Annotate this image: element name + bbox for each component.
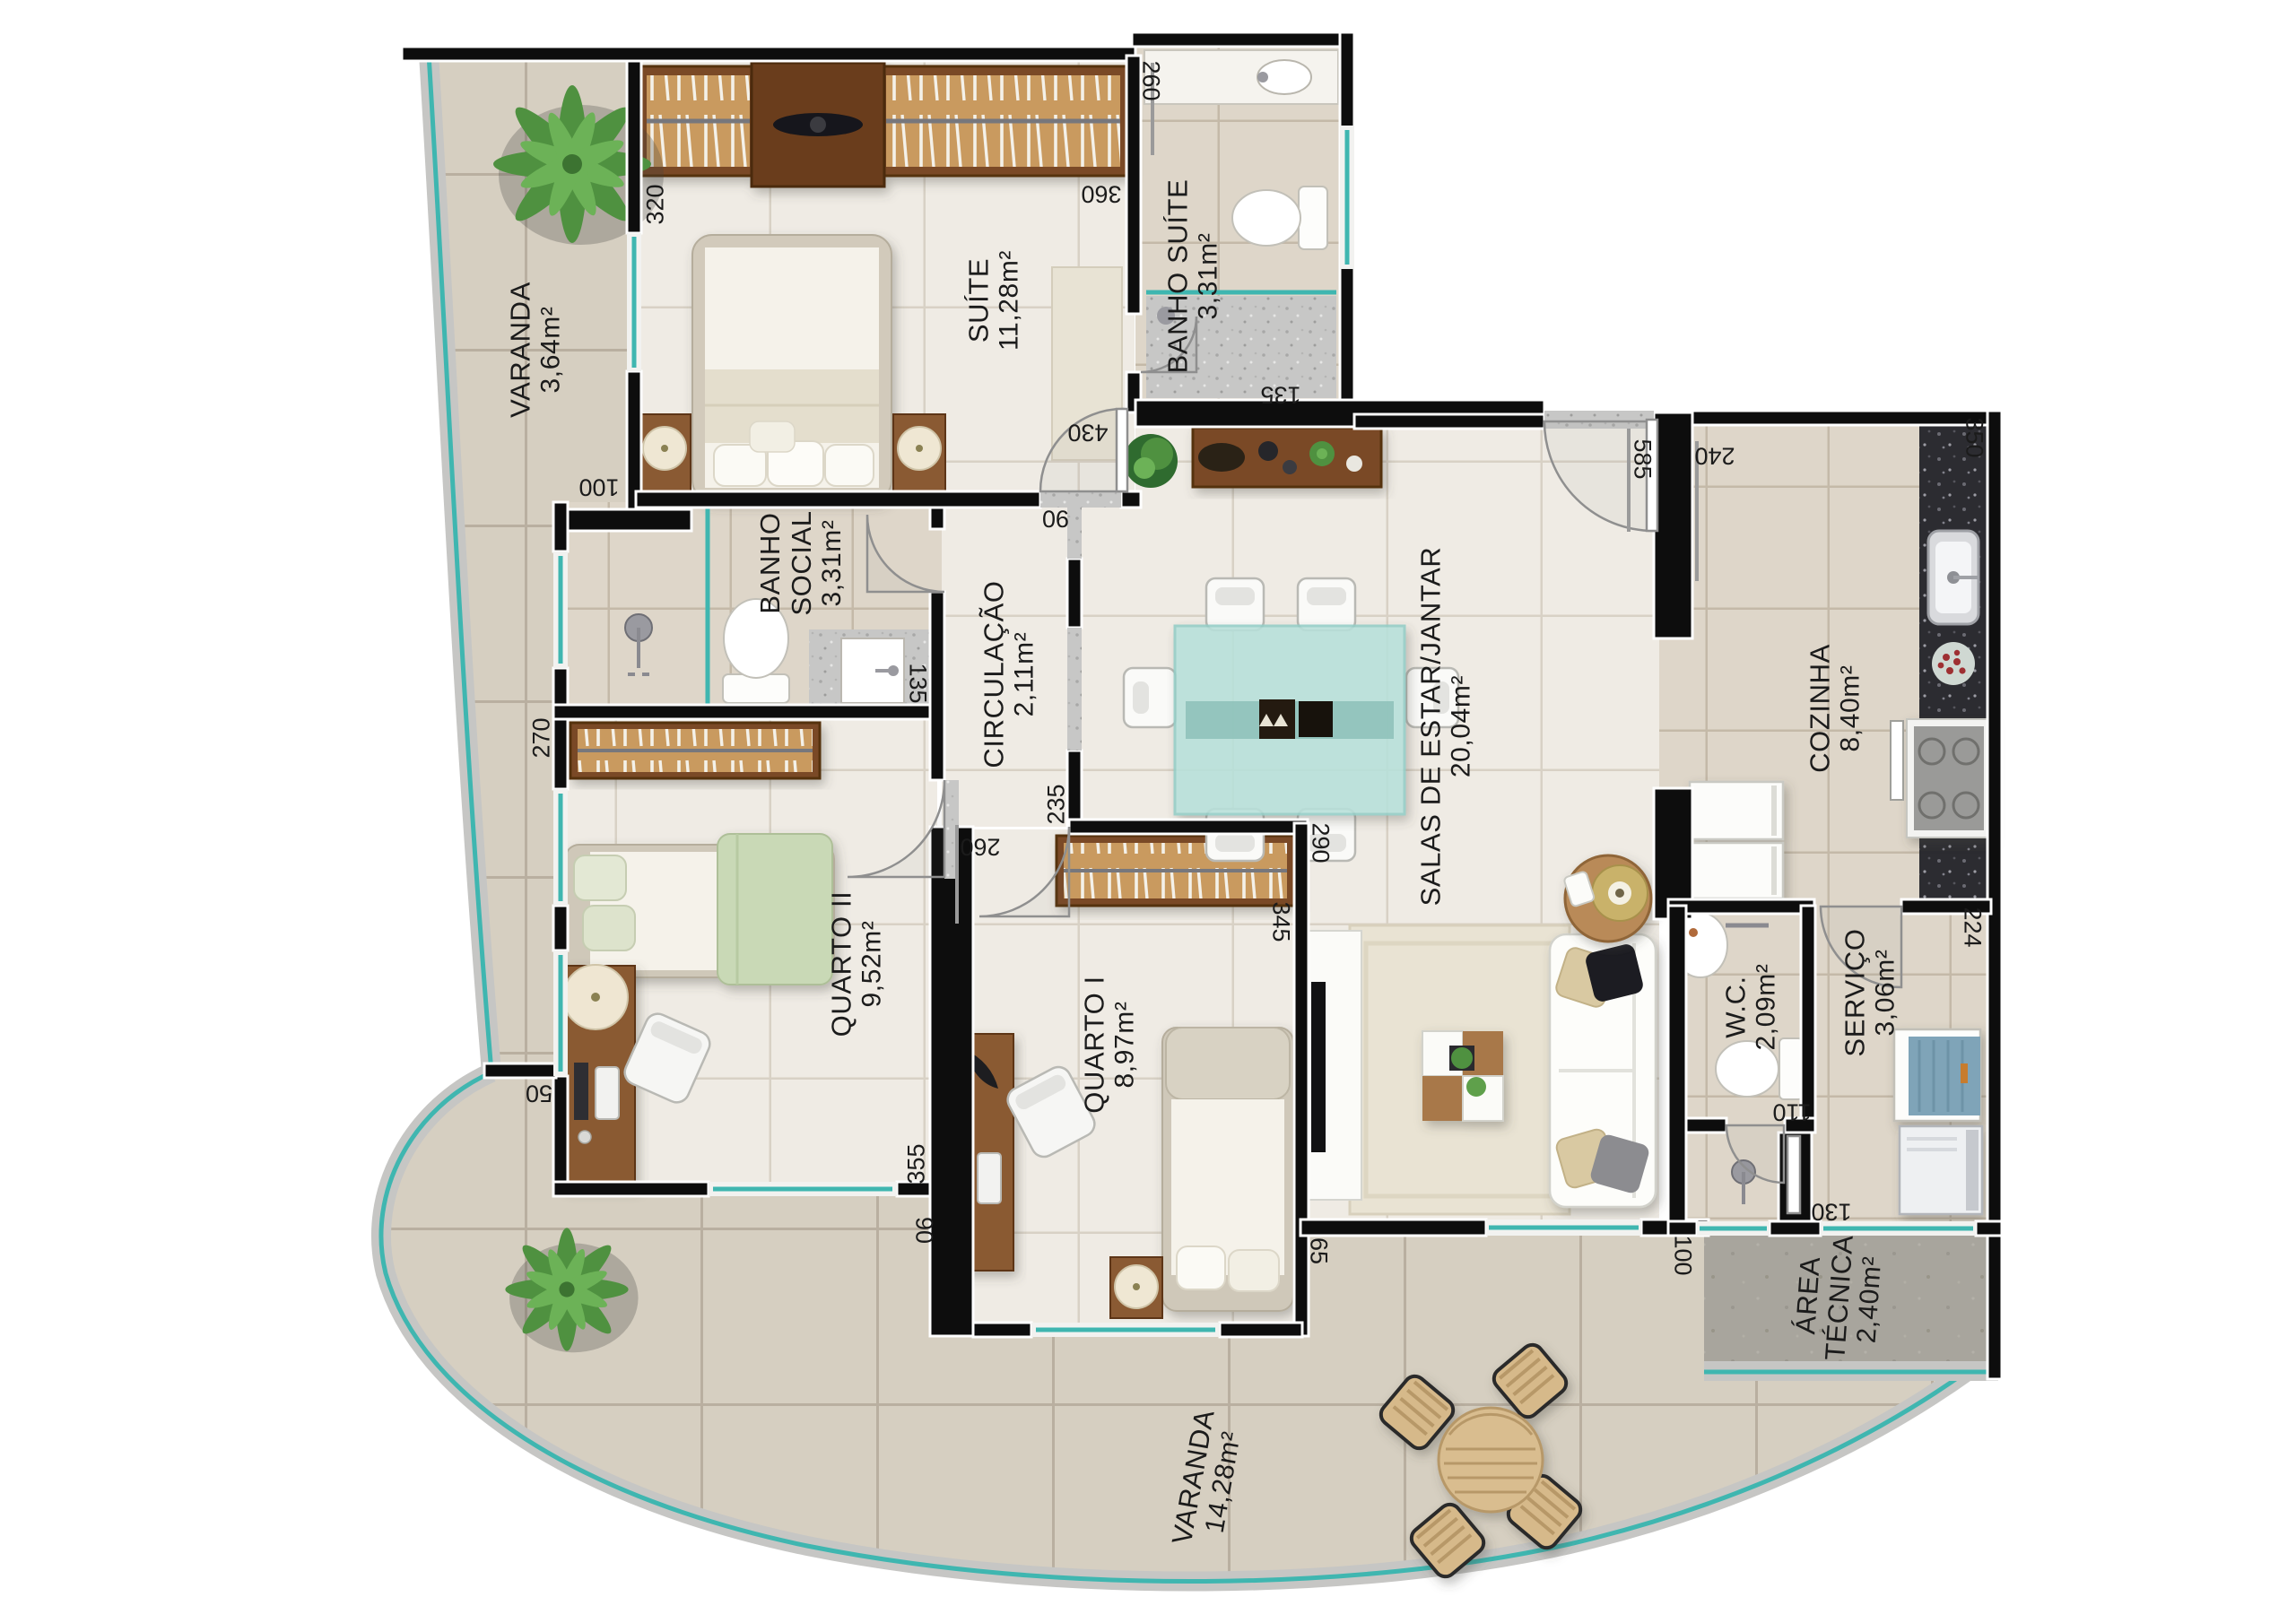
room-name: QUARTO II xyxy=(826,891,857,1037)
room-label-circulacao: CIRCULAÇÃO 2,11m² xyxy=(978,580,1040,768)
floor-plan-drawing xyxy=(0,0,2296,1623)
dimension-355: 355 xyxy=(903,1143,931,1184)
room-area: 8,97m² xyxy=(1110,1002,1141,1089)
servico-laundry-tank xyxy=(1894,1029,1980,1121)
dimension-100-wc: 100 xyxy=(1669,1235,1697,1275)
dimension-90-suite-door: 90 xyxy=(1042,505,1069,533)
quarto2-single-bed xyxy=(565,834,834,985)
dimension-110: 110 xyxy=(1772,1098,1811,1126)
room-label-salas: SALAS DE ESTAR/JANTAR 20,04m² xyxy=(1415,547,1477,907)
dimension-320: 320 xyxy=(642,184,670,224)
kitchen-fridge xyxy=(1690,782,1783,898)
dimension-130: 130 xyxy=(1811,1198,1851,1226)
dimension-345: 345 xyxy=(1267,901,1295,942)
quarto2-wardrobe xyxy=(570,723,820,778)
kitchen-door-leaf xyxy=(1891,721,1903,800)
dimension-585: 585 xyxy=(1629,438,1657,479)
room-area: 20,04m² xyxy=(1447,675,1477,777)
room-area: 3,31m² xyxy=(817,520,848,607)
room-area: 3,31m² xyxy=(1194,233,1224,320)
dimension-260-quarto2-door: 260 xyxy=(960,833,1000,861)
room-name: COZINHA xyxy=(1805,644,1836,773)
kitchen-cooktop xyxy=(1907,719,1989,838)
quarto1-nightstand xyxy=(1110,1257,1162,1318)
room-name: CIRCULAÇÃO xyxy=(978,580,1010,768)
room-name: TÉCNICA xyxy=(1819,1234,1859,1361)
quarto1-single-bed xyxy=(1162,1028,1293,1311)
room-area: 2,11m² xyxy=(1010,632,1040,717)
room-name: W.C. xyxy=(1720,976,1752,1038)
room-area: 8,40m² xyxy=(1836,665,1866,752)
room-label-quarto-1: QUARTO I 8,97m² xyxy=(1079,976,1141,1114)
dimension-240: 240 xyxy=(1694,442,1735,470)
room-area: 2,40m² xyxy=(1852,1255,1889,1344)
dimension-224: 224 xyxy=(1959,907,1987,947)
dimension-430: 430 xyxy=(1067,419,1108,447)
room-area: 2,09m² xyxy=(1752,964,1782,1051)
room-label-banho-suite: BANHO SUÍTE 3,31m² xyxy=(1162,179,1224,374)
room-label-wc: W.C. 2,09m² xyxy=(1720,964,1782,1051)
dimension-350: 350 xyxy=(1961,417,1988,457)
dimension-360: 360 xyxy=(1081,180,1121,208)
room-label-servico: SERVIÇO 3,06m² xyxy=(1839,928,1901,1056)
room-label-quarto-2: QUARTO II 9,52m² xyxy=(826,891,888,1037)
room-area: 3,06m² xyxy=(1871,950,1901,1037)
room-name: VARANDA xyxy=(505,282,536,418)
dimension-290: 290 xyxy=(1307,822,1335,863)
room-name: SERVIÇO xyxy=(1839,928,1871,1056)
tv-panel xyxy=(1308,931,1361,1200)
dimension-270: 270 xyxy=(528,717,556,758)
dimension-65: 65 xyxy=(1305,1237,1333,1264)
room-area: 9,52m² xyxy=(857,921,888,1008)
suite-double-bed xyxy=(692,235,891,500)
room-area: 3,64m² xyxy=(536,307,567,394)
room-area: 11,28m² xyxy=(995,250,1025,351)
room-label-cozinha: COZINHA 8,40m² xyxy=(1805,644,1866,773)
dimension-235: 235 xyxy=(1043,784,1071,824)
room-label-varanda-top: VARANDA 3,64m² xyxy=(505,282,567,418)
room-name: SUÍTE xyxy=(963,258,995,343)
room-label-area-tecnica: ÁREA TÉCNICA 2,40m² xyxy=(1787,1231,1889,1363)
dimension-100-varanda: 100 xyxy=(578,473,619,501)
room-label-banho-social: BANHO SOCIAL 3,31m² xyxy=(754,510,848,615)
corner-plant xyxy=(1124,434,1178,488)
dimension-135-banho-suite: 135 xyxy=(1260,381,1300,409)
coffee-table xyxy=(1422,1031,1503,1121)
suite-nightstand-right xyxy=(893,414,945,491)
dimension-90-quarto2: 90 xyxy=(910,1217,938,1244)
sofa xyxy=(1550,934,1656,1207)
dining-sideboard xyxy=(1193,428,1381,487)
dimension-260: 260 xyxy=(1137,60,1165,100)
room-name: BANHO SUÍTE xyxy=(1162,179,1194,374)
dimension-135-banho-social: 135 xyxy=(904,663,932,703)
dimension-50: 50 xyxy=(526,1080,552,1107)
room-name: QUARTO I xyxy=(1079,976,1110,1114)
side-table-lamp xyxy=(1563,855,1651,942)
room-label-suite: SUÍTE 11,28m² xyxy=(963,250,1025,351)
room-name: SOCIAL xyxy=(786,510,817,615)
suite-wardrobe xyxy=(639,63,1127,187)
suite-nightstand-left xyxy=(639,414,691,491)
room-name: SALAS DE ESTAR/JANTAR xyxy=(1415,547,1447,907)
floor-plan: VARANDA 3,64m² SUÍTE 11,28m² BANHO SUÍTE… xyxy=(0,0,2296,1623)
servico-washer xyxy=(1900,1126,1982,1214)
room-name: BANHO xyxy=(754,512,786,613)
